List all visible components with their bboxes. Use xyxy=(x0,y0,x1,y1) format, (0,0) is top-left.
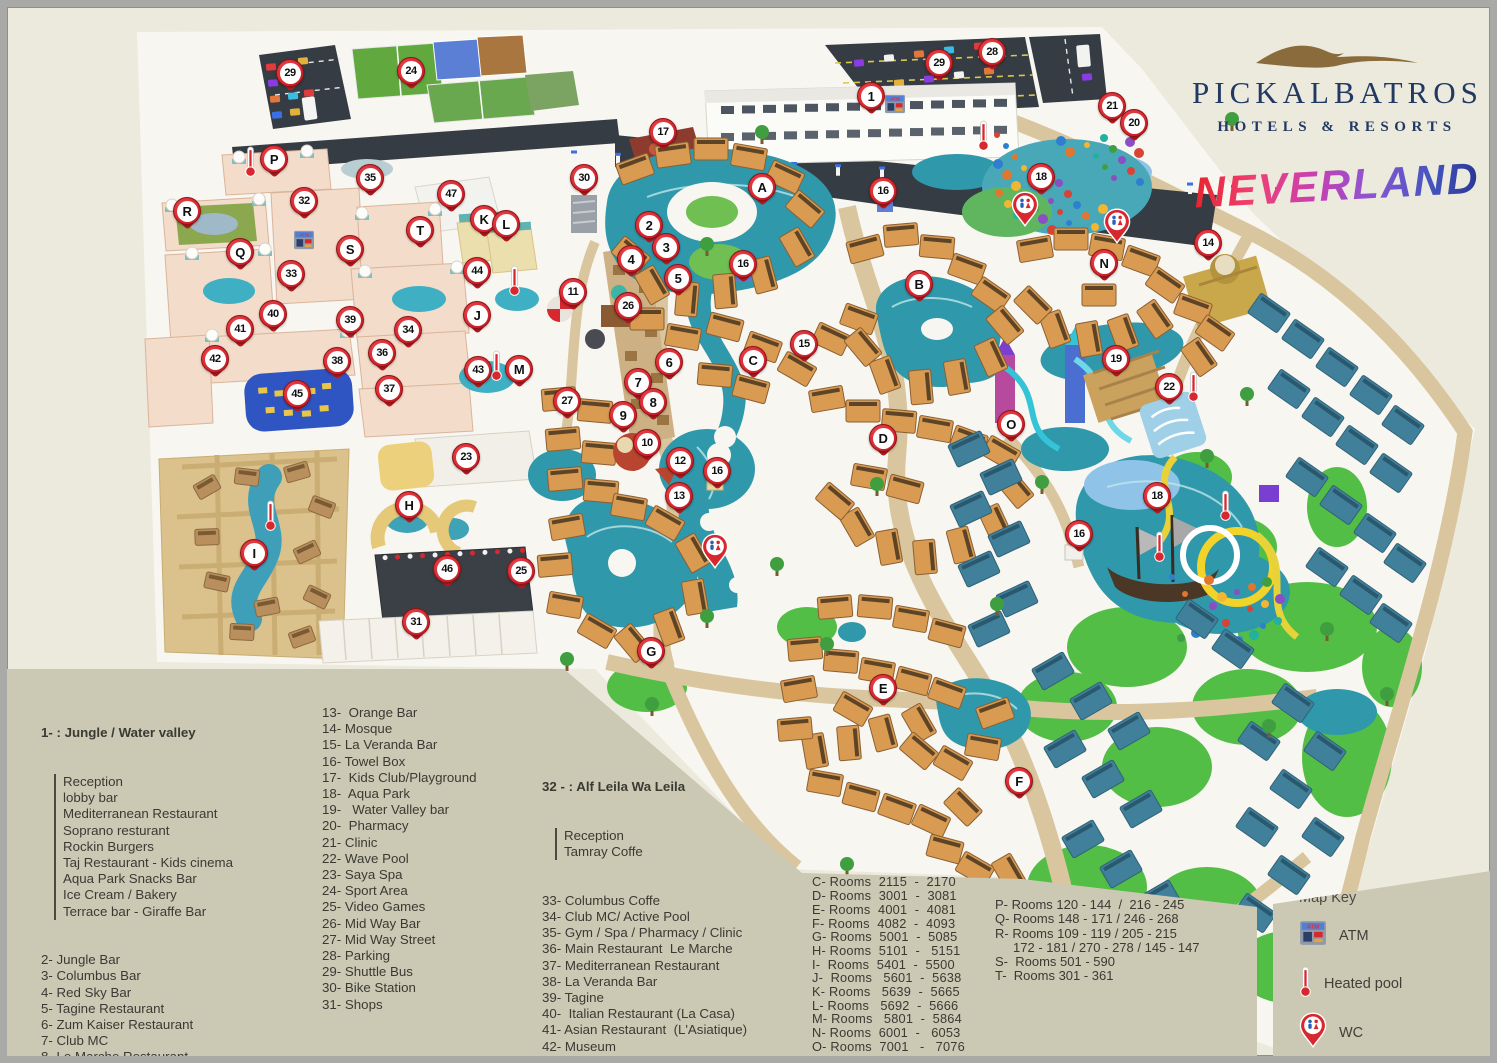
legend-item: 20- Pharmacy xyxy=(322,818,476,834)
legend-subitem: Tamray Coffe xyxy=(564,844,747,860)
rooms-range: H- Rooms 5101 - 5151 xyxy=(812,944,965,958)
park-name: NEVERLAND xyxy=(1191,154,1483,218)
legend-item: 29- Shuttle Bus xyxy=(322,964,476,980)
map-key-label: Heated pool xyxy=(1324,976,1402,992)
legend-item: 39- Tagine xyxy=(542,990,747,1006)
map-pin-h: H xyxy=(395,491,423,533)
rooms-range: K- Rooms 5639 - 5665 xyxy=(812,985,965,999)
map-pin-q: Q xyxy=(226,238,254,280)
rooms-range: 172 - 181 / 270 - 278 / 145 - 147 xyxy=(995,941,1200,955)
heated-pool-icon xyxy=(1219,490,1232,521)
map-pin-22: 22 xyxy=(1155,373,1183,415)
rooms-list-p-t: P- Rooms 120 - 144 / 216 - 245Q- Rooms 1… xyxy=(995,898,1200,984)
rooms-range: O- Rooms 7001 - 7076 xyxy=(812,1040,965,1054)
map-pin-32: 32 xyxy=(290,187,318,229)
rooms-range: G- Rooms 5001 - 5085 xyxy=(812,930,965,944)
map-pin-16: 16 xyxy=(869,177,897,219)
thermometer-icon xyxy=(1299,966,1312,1002)
map-pin-p: P xyxy=(260,145,288,187)
map-pin-c: C xyxy=(739,346,767,388)
map-pin-26: 26 xyxy=(614,292,642,334)
heated-pool-icon xyxy=(244,146,257,177)
map-pin-6: 6 xyxy=(655,348,683,390)
map-pin-l: L xyxy=(492,210,520,252)
legend-item: 14- Mosque xyxy=(322,721,476,737)
legend-subitem: Mediterranean Restaurant xyxy=(63,806,233,822)
rooms-range: R- Rooms 109 - 119 / 205 - 215 xyxy=(995,927,1200,941)
legend-column-2: 13- Orange Bar14- Mosque15- La Veranda B… xyxy=(322,705,476,1013)
map-pin-23: 23 xyxy=(452,443,480,485)
legend-subitem: Ice Cream / Bakery xyxy=(63,887,233,903)
heated-pool-icon xyxy=(1187,371,1200,402)
wc-pin xyxy=(701,533,729,569)
map-pin-45: 45 xyxy=(283,380,311,422)
legend-item: 43- Kids Aquapark xyxy=(542,1055,747,1063)
heated-pool-icon xyxy=(977,120,990,151)
legend-block1-items: 2- Jungle Bar3- Columbus Bar4- Red Sky B… xyxy=(41,952,233,1063)
hotel-name: PICKALBATROS xyxy=(1192,75,1482,111)
legend-subitem: Reception xyxy=(63,774,233,790)
map-pin-20: 20 xyxy=(1120,109,1148,151)
wc-icon xyxy=(1299,1012,1327,1053)
resort-map-brochure: 1- : Jungle / Water valley Receptionlobb… xyxy=(0,0,1497,1063)
legend-item: 26- Mid Way Bar xyxy=(322,916,476,932)
map-pin-47: 47 xyxy=(437,180,465,222)
map-pin-j: J xyxy=(463,301,491,343)
svg-text:ATM: ATM xyxy=(890,97,900,102)
heated-pool-icon xyxy=(1153,531,1166,562)
legend-item: 41- Asian Restaurant (L'Asiatique) xyxy=(542,1022,747,1038)
map-pin-28: 28 xyxy=(978,38,1006,80)
legend-item: 25- Video Games xyxy=(322,899,476,915)
map-pin-41: 41 xyxy=(226,315,254,357)
svg-text:ATM: ATM xyxy=(299,233,309,238)
map-pin-17: 17 xyxy=(649,118,677,160)
rooms-range: I- Rooms 5401 - 5500 xyxy=(812,958,965,972)
legend-block3-items: 33- Columbus Coffe34- Club MC/ Active Po… xyxy=(542,893,747,1063)
legend-item: 37- Mediterranean Restaurant xyxy=(542,958,747,974)
legend-subitem: Taj Restaurant - Kids cinema xyxy=(63,855,233,871)
legend-item: 6- Zum Kaiser Restaurant xyxy=(41,1017,233,1033)
atm-icon: ATM xyxy=(884,94,906,114)
legend-item: 35- Gym / Spa / Pharmacy / Clinic xyxy=(542,925,747,941)
map-pin-e: E xyxy=(869,674,897,716)
legend-item: 19- Water Valley bar xyxy=(322,802,476,818)
atm-icon: ATM xyxy=(1299,920,1327,951)
map-pin-27: 27 xyxy=(553,387,581,429)
legend-subitem: Terrace bar - Giraffe Bar xyxy=(63,904,233,920)
legend-item: 15- La Veranda Bar xyxy=(322,737,476,753)
map-pin-39: 39 xyxy=(336,306,364,348)
rooms-range: E- Rooms 4001 - 4081 xyxy=(812,903,965,917)
rooms-range: L- Rooms 5692 - 5666 xyxy=(812,999,965,1013)
legend-item: 28- Parking xyxy=(322,948,476,964)
map-pin-o: O xyxy=(997,410,1025,452)
map-pin-31: 31 xyxy=(402,608,430,650)
legend-block1-sublist: Receptionlobby barMediterranean Restaura… xyxy=(54,774,233,920)
legend-item: 38- La Veranda Bar xyxy=(542,974,747,990)
legend-block1-title: 1- : Jungle / Water valley xyxy=(41,725,233,741)
legend-item: 7- Club MC xyxy=(41,1033,233,1049)
rooms-range: P- Rooms 120 - 144 / 216 - 245 xyxy=(995,898,1200,912)
svg-text:ATM: ATM xyxy=(1307,925,1319,931)
map-key-label: WC xyxy=(1339,1025,1363,1041)
rooms-range: F- Rooms 4082 - 4093 xyxy=(812,917,965,931)
legend-item: 18- Aqua Park xyxy=(322,786,476,802)
map-pin-16: 16 xyxy=(1065,520,1093,562)
map-pin-35: 35 xyxy=(356,164,384,206)
map-pin-25: 25 xyxy=(507,557,535,599)
map-pin-n: N xyxy=(1090,249,1118,291)
map-pin-42: 42 xyxy=(201,345,229,387)
rooms-range: C- Rooms 2115 - 2170 xyxy=(812,875,965,889)
legend-block3-sublist: ReceptionTamray Coffe xyxy=(555,828,747,860)
legend-subitem: lobby bar xyxy=(63,790,233,806)
map-pin-43: 43 xyxy=(464,356,492,398)
legend-item: 40- Italian Restaurant (La Casa) xyxy=(542,1006,747,1022)
map-key-row: Heated pool xyxy=(1299,966,1402,1002)
map-pin-40: 40 xyxy=(259,300,287,342)
map-pin-b: B xyxy=(905,270,933,312)
map-pin-44: 44 xyxy=(463,257,491,299)
map-pin-14: 14 xyxy=(1194,229,1222,271)
legend-item: 8- Le Marche Restaurant xyxy=(41,1049,233,1063)
legend-item: 2- Jungle Bar xyxy=(41,952,233,968)
atm-icon: ATM xyxy=(293,230,315,250)
legend-item: 4- Red Sky Bar xyxy=(41,985,233,1001)
legend-item: 17- Kids Club/Playground xyxy=(322,770,476,786)
legend-item: 16- Towel Box xyxy=(322,754,476,770)
map-pin-11: 11 xyxy=(559,278,587,320)
map-pin-19: 19 xyxy=(1102,345,1130,387)
rooms-range: Q- Rooms 148 - 171 / 246 - 268 xyxy=(995,912,1200,926)
map-pin-34: 34 xyxy=(394,316,422,358)
legend-item: 33- Columbus Coffe xyxy=(542,893,747,909)
legend-item: 34- Club MC/ Active Pool xyxy=(542,909,747,925)
rooms-range: T- Rooms 301 - 361 xyxy=(995,969,1200,983)
map-pin-29: 29 xyxy=(276,59,304,101)
map-pin-29: 29 xyxy=(925,49,953,91)
rooms-range: S- Rooms 501 - 590 xyxy=(995,955,1200,969)
legend-item: 21- Clinic xyxy=(322,835,476,851)
map-pin-15: 15 xyxy=(790,330,818,372)
map-pin-g: G xyxy=(637,637,665,679)
map-pin-5: 5 xyxy=(664,264,692,306)
legend-item: 27- Mid Way Street xyxy=(322,932,476,948)
rooms-list-a-o: A- Rooms 1001 - 1122B- Rooms 2001 - 2114… xyxy=(812,848,965,1054)
legend-subitem: Soprano resturant xyxy=(63,823,233,839)
map-pin-t: T xyxy=(406,216,434,258)
map-pin-38: 38 xyxy=(323,347,351,389)
legend-item: 13- Orange Bar xyxy=(322,705,476,721)
legend-item: 36- Main Restaurant Le Marche xyxy=(542,941,747,957)
brand-logo: PICKALBATROS HOTELS & RESORTS NEVERLAND xyxy=(1192,37,1482,211)
rooms-range: J- Rooms 5601 - 5638 xyxy=(812,971,965,985)
wc-pin xyxy=(1103,208,1131,244)
map-key-label: ATM xyxy=(1339,928,1369,944)
legend-item: 30- Bike Station xyxy=(322,980,476,996)
hotel-tagline: HOTELS & RESORTS xyxy=(1192,119,1482,136)
rooms-range: N- Rooms 6001 - 6053 xyxy=(812,1026,965,1040)
map-key-row: WC xyxy=(1299,1012,1363,1053)
map-pin-33: 33 xyxy=(277,260,305,302)
map-pin-18: 18 xyxy=(1143,482,1171,524)
legend-item: 22- Wave Pool xyxy=(322,851,476,867)
legend-subitem: Rockin Burgers xyxy=(63,839,233,855)
map-pin-30: 30 xyxy=(570,164,598,206)
map-pin-46: 46 xyxy=(433,555,461,597)
map-pin-16: 16 xyxy=(729,250,757,292)
map-pin-1: 1 xyxy=(857,82,885,124)
map-pin-8: 8 xyxy=(639,388,667,430)
wc-pin xyxy=(1011,191,1039,227)
map-pin-r: R xyxy=(173,197,201,239)
legend-subitem: Reception xyxy=(564,828,747,844)
rooms-range: M- Rooms 5801 - 5864 xyxy=(812,1012,965,1026)
legend-subitem: Aqua Park Snacks Bar xyxy=(63,871,233,887)
map-pin-m: M xyxy=(505,355,533,397)
albatross-icon xyxy=(1252,37,1422,71)
map-pin-4: 4 xyxy=(617,245,645,287)
legend-item: 3- Columbus Bar xyxy=(41,968,233,984)
map-pin-24: 24 xyxy=(397,57,425,99)
heated-pool-icon xyxy=(508,265,521,296)
map-pin-16: 16 xyxy=(703,457,731,499)
legend-item: 31- Shops xyxy=(322,997,476,1013)
map-pin-13: 13 xyxy=(665,482,693,524)
map-pin-10: 10 xyxy=(633,429,661,471)
legend-item: 42- Museum xyxy=(542,1039,747,1055)
legend-item: 24- Sport Area xyxy=(322,883,476,899)
heated-pool-icon xyxy=(264,500,277,531)
map-pin-s: S xyxy=(336,235,364,277)
map-pin-37: 37 xyxy=(375,375,403,417)
legend-item: 23- Saya Spa xyxy=(322,867,476,883)
map-pin-d: D xyxy=(869,424,897,466)
legend-item: 5- Tagine Restaurant xyxy=(41,1001,233,1017)
map-pin-f: F xyxy=(1005,767,1033,809)
legend-column-1: 1- : Jungle / Water valley Receptionlobb… xyxy=(41,693,233,1063)
map-pin-a: A xyxy=(748,173,776,215)
map-pin-i: I xyxy=(240,539,268,581)
map-key-row: ATMATM xyxy=(1299,920,1369,951)
rooms-range: D- Rooms 3001 - 3081 xyxy=(812,889,965,903)
